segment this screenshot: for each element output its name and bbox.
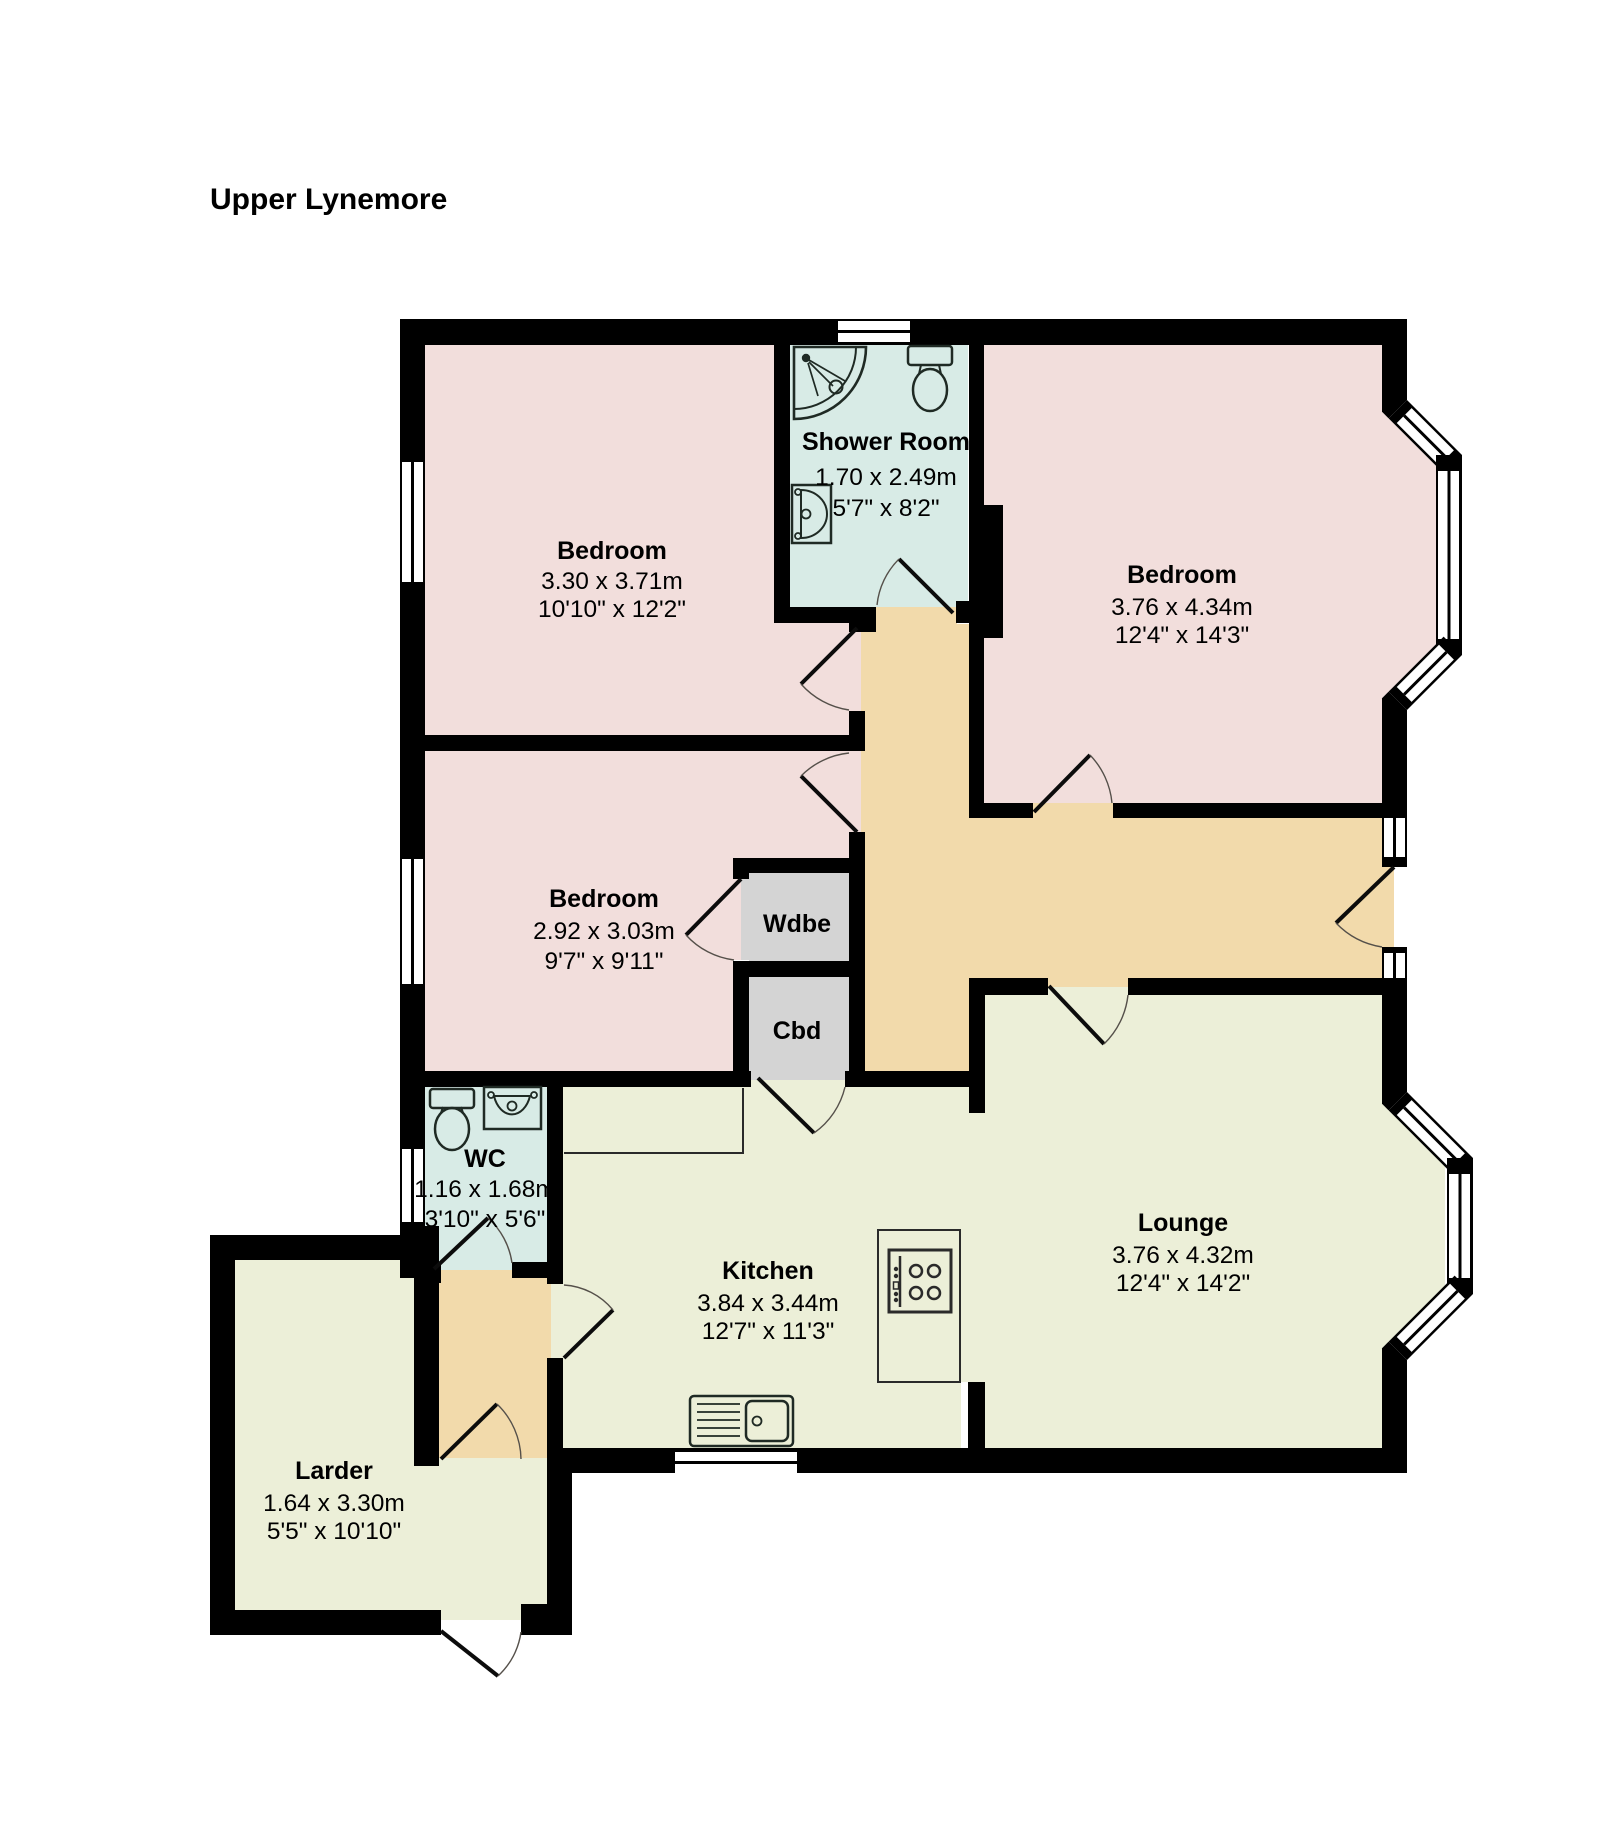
svg-text:12'4" x 14'2": 12'4" x 14'2" [1116, 1270, 1250, 1297]
svg-text:10'10" x 12'2": 10'10" x 12'2" [538, 596, 686, 623]
svg-text:5'7" x 8'2": 5'7" x 8'2" [832, 495, 939, 522]
svg-text:12'7" x 11'3": 12'7" x 11'3" [702, 1318, 835, 1345]
svg-text:Lounge: Lounge [1138, 1209, 1228, 1237]
svg-text:Larder: Larder [295, 1457, 373, 1485]
svg-text:Kitchen: Kitchen [722, 1257, 814, 1285]
svg-text:9'7" x 9'11": 9'7" x 9'11" [545, 948, 664, 975]
svg-text:5'5" x 10'10": 5'5" x 10'10" [267, 1518, 401, 1545]
svg-text:3.30 x 3.71m: 3.30 x 3.71m [541, 568, 683, 595]
svg-text:1.16 x 1.68m: 1.16 x 1.68m [414, 1176, 556, 1203]
svg-text:1.64 x 3.30m: 1.64 x 3.30m [263, 1490, 405, 1517]
svg-text:1.70 x 2.49m: 1.70 x 2.49m [815, 464, 957, 491]
svg-text:3.84 x 3.44m: 3.84 x 3.44m [697, 1290, 839, 1317]
svg-text:Upper Lynemore: Upper Lynemore [210, 183, 447, 216]
svg-text:Shower Room: Shower Room [802, 428, 970, 456]
svg-text:Cbd: Cbd [773, 1017, 822, 1045]
svg-text:Bedroom: Bedroom [549, 885, 659, 913]
svg-text:3'10" x 5'6": 3'10" x 5'6" [425, 1206, 546, 1233]
svg-text:2.92 x 3.03m: 2.92 x 3.03m [533, 918, 675, 945]
svg-text:Wdbe: Wdbe [763, 910, 831, 938]
svg-text:Bedroom: Bedroom [1127, 561, 1237, 589]
svg-text:12'4" x 14'3": 12'4" x 14'3" [1115, 622, 1249, 649]
svg-text:WC: WC [464, 1145, 506, 1173]
svg-text:Bedroom: Bedroom [557, 537, 667, 565]
svg-text:3.76 x 4.32m: 3.76 x 4.32m [1112, 1242, 1254, 1269]
svg-text:3.76 x 4.34m: 3.76 x 4.34m [1111, 594, 1253, 621]
